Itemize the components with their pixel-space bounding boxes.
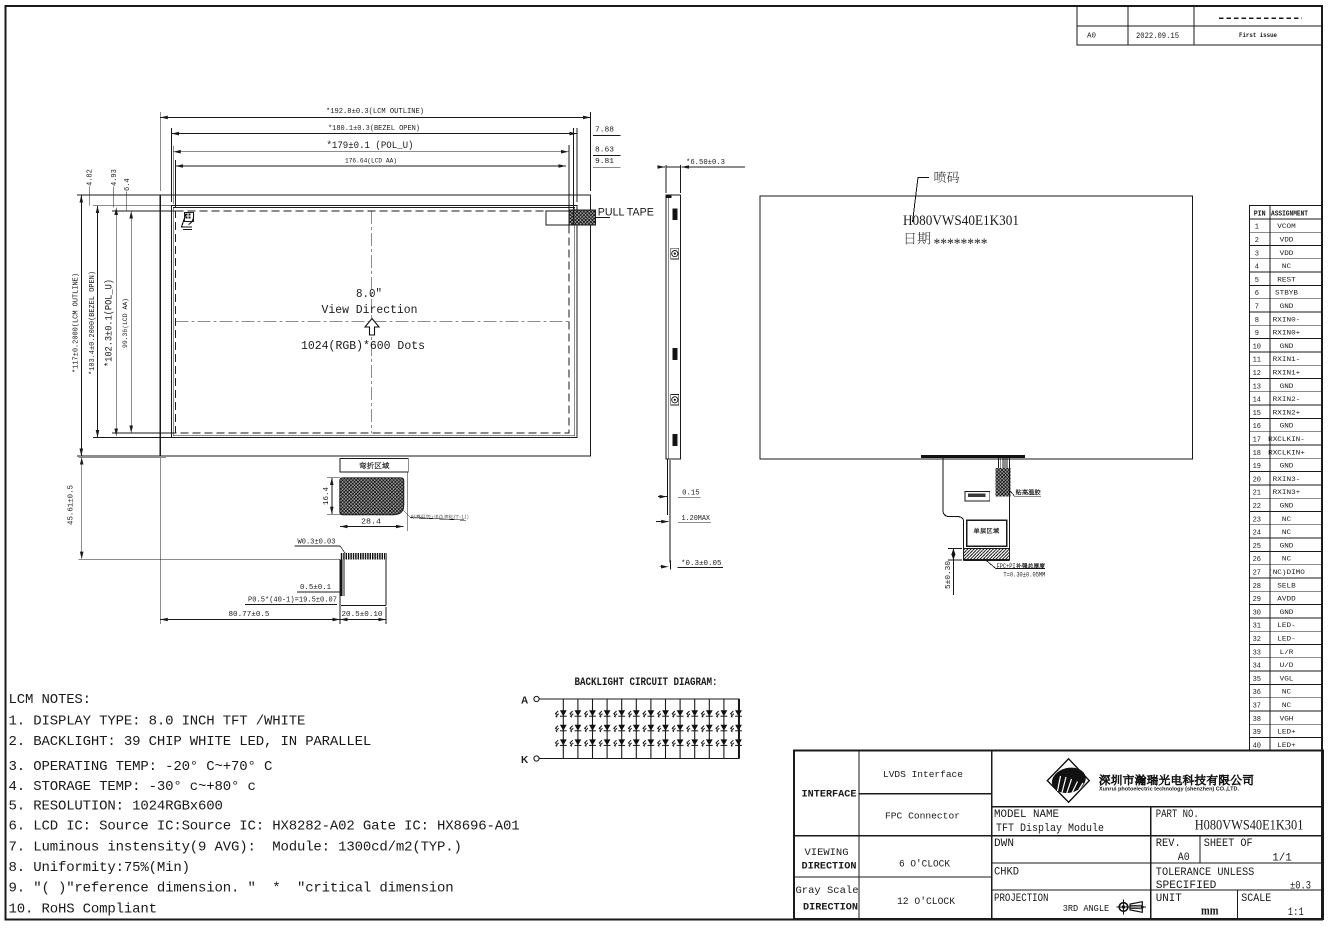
svg-text:********: ******** [934,236,988,252]
svg-text:LVDS Interface: LVDS Interface [883,769,963,780]
svg-text:RXCLKIN-: RXCLKIN- [1268,436,1305,444]
svg-text:2. BACKLIGHT: 39 CHIP WHITE LE: 2. BACKLIGHT: 39 CHIP WHITE LED, IN PARA… [9,734,372,750]
svg-text:4. STORAGE TEMP: -30° c~+80° c: 4. STORAGE TEMP: -30° c~+80° c [9,779,256,795]
svg-text:30: 30 [1253,609,1261,617]
svg-text:PROJECTION: PROJECTION [994,893,1049,905]
svg-text:*179±0.1 (POL_U): *179±0.1 (POL_U) [327,140,414,151]
svg-text:8: 8 [1255,317,1259,325]
svg-text:T=0.30±0.05MM: T=0.30±0.05MM [1003,572,1045,579]
svg-text:NC: NC [1282,516,1291,524]
svg-text:Gray Scale: Gray Scale [796,885,859,897]
svg-text:6.4: 6.4 [124,178,132,191]
svg-text:NC: NC [1282,556,1291,564]
svg-text:A: A [521,696,528,707]
svg-text:23: 23 [1253,516,1261,524]
svg-text:2: 2 [1255,237,1259,245]
svg-text:VIEWING: VIEWING [805,848,849,859]
svg-text:5±0.30: 5±0.30 [945,560,953,589]
svg-text:22: 22 [1253,503,1261,511]
svg-text:VGL: VGL [1280,675,1294,683]
svg-text:40: 40 [1253,742,1261,750]
svg-text:7. Luminous instensity(9 AVG):: 7. Luminous instensity(9 AVG): Module: 1… [9,840,462,856]
svg-text:LED+: LED+ [1277,742,1295,750]
svg-text:*0.3±0.05: *0.3±0.05 [681,560,722,568]
svg-text:18: 18 [1253,450,1261,458]
svg-text:4.93: 4.93 [111,169,119,186]
svg-text:45.61±0.5: 45.61±0.5 [68,485,76,525]
svg-text:21: 21 [1253,490,1261,498]
svg-text:FPC+PI: FPC+PI [997,563,1016,570]
svg-text:19: 19 [1253,463,1261,471]
svg-text:DIRECTION: DIRECTION [803,903,858,914]
svg-text:39: 39 [1253,729,1261,737]
svg-text:2022.09.15: 2022.09.15 [1136,32,1179,41]
svg-text:15: 15 [1253,410,1261,418]
svg-text:12 O'CLOCK: 12 O'CLOCK [897,896,955,908]
svg-text:6: 6 [1255,290,1259,298]
svg-text:9.81: 9.81 [595,158,615,166]
svg-text:LED-: LED- [1277,636,1295,644]
svg-text:0.5±0.1: 0.5±0.1 [300,584,331,592]
svg-text:VCOM: VCOM [1277,223,1295,231]
svg-text:GND: GND [1280,423,1294,431]
svg-text:GND: GND [1280,609,1294,617]
svg-text:GND: GND [1280,303,1294,311]
svg-text:RXIN1-: RXIN1- [1273,356,1301,364]
svg-text:NC: NC [1282,702,1291,710]
svg-text:DWN: DWN [994,838,1014,850]
svg-text:9. ″( )″reference dimension. ″: 9. ″( )″reference dimension. ″ * ″critic… [9,881,454,897]
svg-text:32: 32 [1253,636,1261,644]
svg-text:RXIN2-: RXIN2- [1273,396,1301,404]
svg-text:*103.4±0.2000(BEZEL OPEN): *103.4±0.2000(BEZEL OPEN) [89,271,97,375]
svg-text:16.4: 16.4 [323,487,331,505]
svg-text:33: 33 [1253,649,1261,657]
svg-text:4.82: 4.82 [87,169,95,186]
svg-text:SPECIFIED: SPECIFIED [1156,880,1217,892]
svg-text:28: 28 [1253,583,1261,591]
svg-text:L/R: L/R [1280,649,1294,657]
svg-text:BACKLIGHT CIRCUIT DIAGRAM:: BACKLIGHT CIRCUIT DIAGRAM: [575,677,718,689]
svg-text:mm: mm [1201,903,1219,918]
svg-text:(NC)DIMO: (NC)DIMO [1268,569,1305,577]
svg-text:*180.1±0.3(BEZEL OPEN): *180.1±0.3(BEZEL OPEN) [328,125,420,133]
svg-text:1: 1 [1255,224,1259,232]
svg-text:GND: GND [1280,463,1294,471]
svg-text:8. Uniformity:75%(Min): 8. Uniformity:75%(Min) [9,860,190,876]
svg-text:INTERFACE: INTERFACE [802,790,857,801]
svg-text:FPC Connector: FPC Connector [885,811,960,822]
svg-text:RXIN1+: RXIN1+ [1273,370,1301,378]
svg-text:4: 4 [1255,264,1259,272]
svg-text:29: 29 [1253,596,1261,604]
svg-text:GND: GND [1280,383,1294,391]
svg-text:DIRECTION: DIRECTION [802,862,857,873]
svg-text:6 O'CLOCK: 6 O'CLOCK [899,859,950,871]
svg-text:PART NO.: PART NO. [1156,809,1199,821]
svg-text:NC: NC [1282,263,1291,271]
svg-text:3: 3 [1255,250,1259,258]
svg-text:25: 25 [1253,543,1261,551]
svg-text:38: 38 [1253,716,1261,724]
svg-text:14: 14 [1253,397,1261,405]
svg-text:H080VWS40E1K301: H080VWS40E1K301 [1195,818,1304,834]
svg-text:35: 35 [1253,676,1261,684]
svg-text:13: 13 [1253,383,1261,391]
svg-text:28.4: 28.4 [361,518,382,526]
svg-text:3RD ANGLE: 3RD ANGLE [1063,903,1110,914]
svg-text:REV.: REV. [1156,838,1181,850]
svg-text:RXIN0-: RXIN0- [1273,316,1301,324]
svg-text:5: 5 [1255,277,1259,285]
svg-text:8.63: 8.63 [595,146,615,154]
svg-text:CHKD: CHKD [994,867,1019,879]
svg-text:REST: REST [1277,276,1295,284]
svg-text:10. RoHS Compliant: 10. RoHS Compliant [9,902,157,918]
svg-text:1024(RGB)*600 Dots: 1024(RGB)*600 Dots [301,340,425,353]
svg-text:8.0″: 8.0″ [356,288,382,301]
svg-text:99.36(LCD AA): 99.36(LCD AA) [122,298,129,348]
svg-text:36: 36 [1253,689,1261,697]
svg-text:RXIN3-: RXIN3- [1273,476,1301,484]
svg-text:RXIN2+: RXIN2+ [1273,409,1301,417]
svg-text:34: 34 [1253,663,1261,671]
svg-text:TFT Display Module: TFT Display Module [996,823,1104,835]
svg-text:LCM NOTES:: LCM NOTES: [9,692,91,708]
svg-text:W0.3±0.03: W0.3±0.03 [298,539,336,547]
svg-text:RXIN0+: RXIN0+ [1273,330,1301,338]
svg-text:176.64(LCD AA): 176.64(LCD AA) [345,157,397,164]
svg-text:UNIT: UNIT [1156,893,1182,905]
svg-text:A0: A0 [1178,852,1190,864]
svg-text:31: 31 [1253,623,1261,631]
svg-text:MODEL NAME: MODEL NAME [994,809,1059,821]
svg-text:1.20MAX: 1.20MAX [682,515,711,523]
svg-text:1:1: 1:1 [1288,907,1304,919]
svg-text:7: 7 [1255,304,1259,312]
svg-text:20.5±0.10: 20.5±0.10 [342,611,383,619]
svg-text:*192.8±0.3(LCM OUTLINE): *192.8±0.3(LCM OUTLINE) [326,108,424,116]
svg-text:PULL TAPE: PULL TAPE [598,207,654,219]
svg-text:ASSIGNMENT: ASSIGNMENT [1271,210,1308,218]
svg-text:16: 16 [1253,423,1261,431]
svg-text:17: 17 [1253,437,1261,445]
svg-text:RXCLKIN+: RXCLKIN+ [1268,449,1305,457]
svg-text:VDD: VDD [1280,250,1294,258]
svg-text:80.77±0.5: 80.77±0.5 [229,611,270,619]
svg-text:VDD: VDD [1280,237,1294,245]
svg-text:NC: NC [1282,529,1291,537]
svg-text:LED-: LED- [1277,622,1295,630]
svg-text:H080VWS40E1K301: H080VWS40E1K301 [903,213,1019,229]
svg-text:12: 12 [1253,370,1261,378]
svg-text:10: 10 [1253,343,1261,351]
svg-text:9: 9 [1255,330,1259,338]
svg-text:6. LCD IC: Source IC:Source IC: 6. LCD IC: Source IC:Source IC: HX8282-A… [9,819,520,835]
svg-text:*6.50±0.3: *6.50±0.3 [686,159,725,167]
svg-text:RXIN3+: RXIN3+ [1273,489,1301,497]
svg-text:7.88: 7.88 [595,126,614,134]
svg-text:*102.3±0.1(POL_U): *102.3±0.1(POL_U) [104,279,115,367]
svg-text:11: 11 [1253,357,1261,365]
svg-text:K: K [521,755,529,766]
svg-text:SHEET OF: SHEET OF [1204,838,1253,850]
svg-text:STBYB: STBYB [1275,290,1298,298]
svg-text:PIN: PIN [1254,210,1266,218]
svg-text:±0.3: ±0.3 [1290,881,1311,893]
svg-text:26: 26 [1253,556,1261,564]
svg-text:1. DISPLAY TYPE: 8.0 INCH TFT: 1. DISPLAY TYPE: 8.0 INCH TFT /WHITE [9,714,306,730]
svg-text:AVDD: AVDD [1277,596,1295,604]
svg-text:20: 20 [1253,476,1261,484]
svg-text:A0: A0 [1087,33,1097,41]
svg-text:U/D: U/D [1280,662,1294,670]
svg-text:Xunrui photoelectric technolog: Xunrui photoelectric technology (shenzhe… [1099,787,1239,793]
svg-text:3. OPERATING TEMP: -20° C~+70°: 3. OPERATING TEMP: -20° C~+70° C [9,759,273,775]
svg-text:View Direction: View Direction [322,304,418,317]
svg-text:GND: GND [1280,503,1294,511]
svg-text:SELB: SELB [1277,582,1295,590]
svg-text:VGH: VGH [1280,715,1294,723]
svg-text:0.15: 0.15 [682,490,700,498]
svg-text:GND: GND [1280,343,1294,351]
svg-text:TOLERANCE UNLESS: TOLERANCE UNLESS [1156,867,1255,879]
svg-text:First issue: First issue [1239,32,1277,39]
svg-text:P0.5*(40-1)=19.5±0.07: P0.5*(40-1)=19.5±0.07 [248,597,337,605]
svg-text:5. RESOLUTION: 1024RGBx600: 5. RESOLUTION: 1024RGBx600 [9,799,223,815]
svg-text:*117±0.2000(LCM OUTLINE): *117±0.2000(LCM OUTLINE) [73,273,81,373]
svg-text:1/1: 1/1 [1272,853,1292,865]
svg-text:NC: NC [1282,689,1291,697]
svg-text:24: 24 [1253,530,1261,538]
svg-text:SCALE: SCALE [1241,893,1271,905]
svg-text:LED+: LED+ [1277,729,1295,737]
svg-text:37: 37 [1253,703,1261,711]
svg-text:GND: GND [1280,542,1294,550]
svg-text:27: 27 [1253,570,1261,578]
